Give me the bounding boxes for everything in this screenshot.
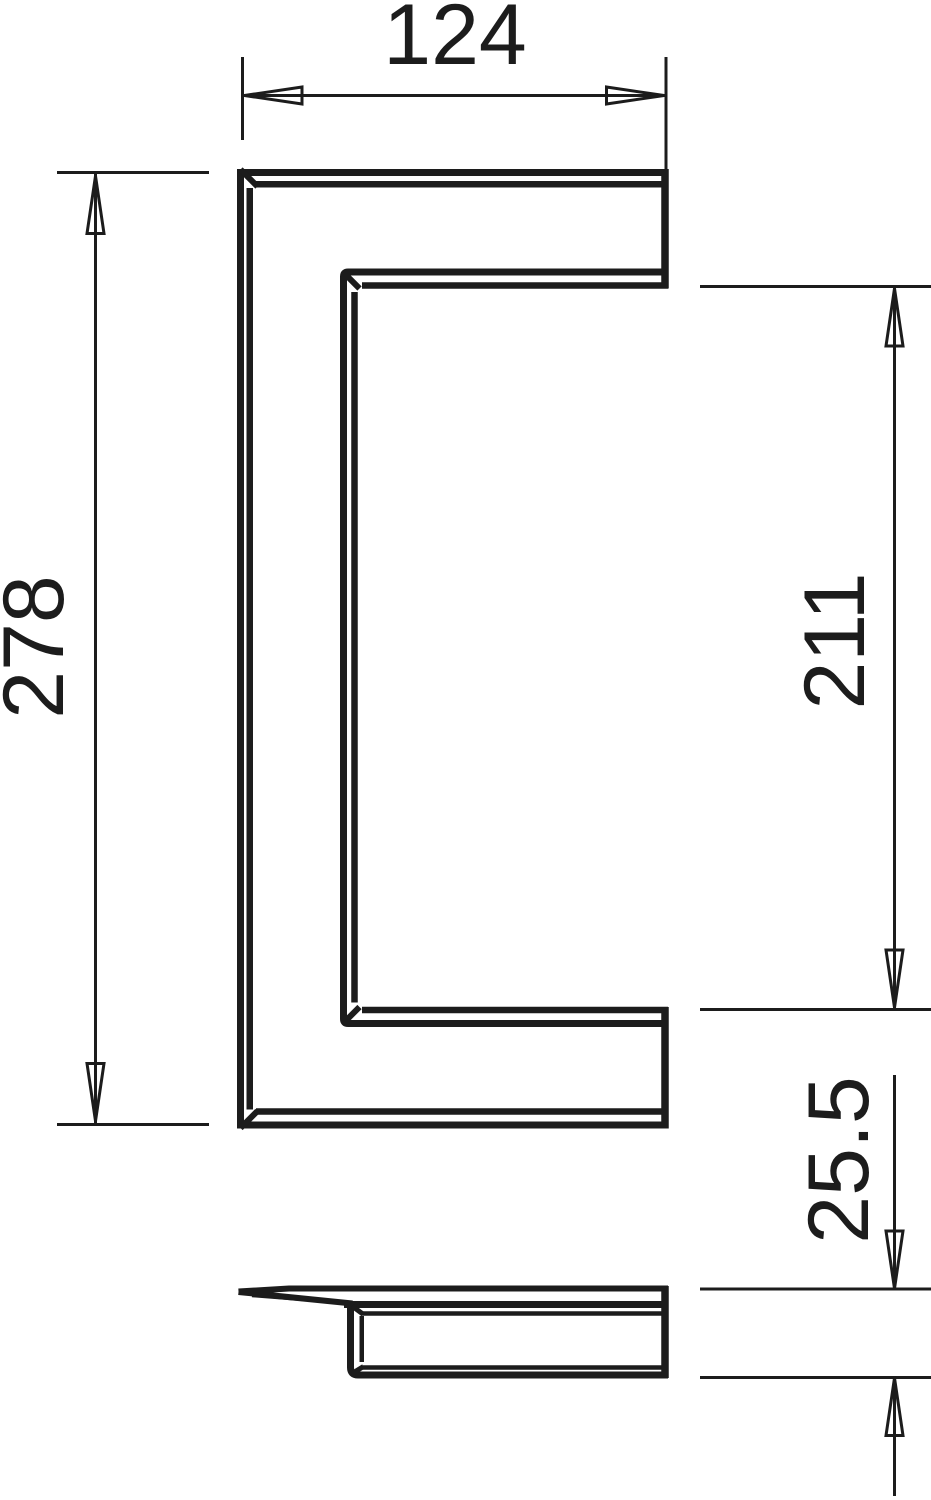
dim-outer-height: 278 <box>0 173 209 1125</box>
dim-inner-height: 211 <box>700 287 931 1010</box>
strip-top-edge <box>239 1289 669 1292</box>
top-view <box>239 1286 669 1378</box>
inner-contour <box>344 272 669 1024</box>
technical-drawing: 124 278 211 25.5 <box>0 0 931 1500</box>
dim-outer-width: 124 <box>243 0 667 170</box>
inner-chamfer-bottom <box>347 1007 360 1020</box>
dim-inner-height-label: 211 <box>787 572 883 709</box>
dim-depth: 25.5 <box>700 1075 931 1496</box>
dim-outer-height-label: 278 <box>0 575 82 719</box>
dim-depth-label: 25.5 <box>791 1076 887 1243</box>
outer-contour <box>241 173 669 1126</box>
inner-chamfer-top <box>347 276 360 289</box>
body-left-bottom-edge <box>351 1307 669 1375</box>
drawing-sheet: 124 278 211 25.5 <box>0 0 931 1500</box>
dim-outer-width-label: 124 <box>383 0 527 83</box>
front-view <box>241 169 669 1129</box>
